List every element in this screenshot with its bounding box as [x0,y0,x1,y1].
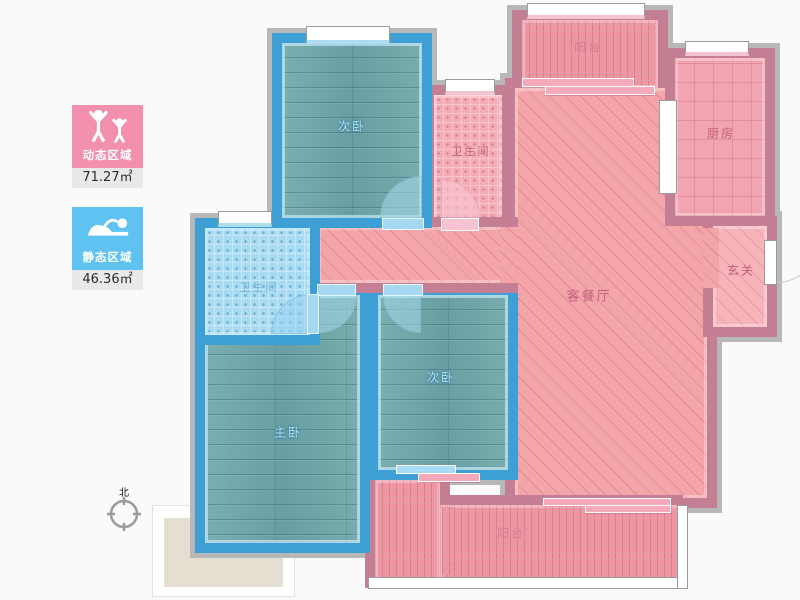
label-balcony-top: 阳台 [574,39,602,56]
sliding-door-balcony-top-panel2 [545,86,655,95]
label-foyer: 玄关 [727,262,755,279]
entry-door-leaf [764,240,777,285]
door-leaf-bedroom-top-left [382,218,424,230]
door-leaf-master-bedroom [317,284,356,296]
label-kitchen: 厨房 [707,125,735,142]
door-arc-entry [777,241,800,283]
label-bathroom-left: 卫生间 [240,279,279,295]
static-area-label: 静态区域 [83,249,133,265]
static-area-card: 静态区域 46.36㎡ [72,207,143,290]
sliding-door-bedroom-balcony-panel2 [418,473,480,482]
person-sleeping-icon [85,207,131,249]
label-bathroom-top: 卫生间 [452,143,491,159]
window-kitchen [685,41,749,56]
kitchen-door [659,100,677,194]
dynamic-area-box: 动态区域 [72,105,143,168]
label-master-bedroom: 主卧 [274,424,302,441]
door-leaf-bathroom-left [307,294,319,334]
balcony-bottom-railing [368,577,684,589]
opening-living-foyer [703,228,719,288]
opening-balcony-join [442,507,454,575]
opening-corridor-living [500,227,518,283]
window-bedroom-top-left [306,26,390,44]
static-area-box: 静态区域 [72,207,143,270]
balcony-right-railing [677,505,688,589]
window-bathroom-top [445,79,495,95]
people-dancing-icon [85,105,131,147]
dynamic-area-label: 动态区域 [83,147,133,163]
window-bathroom-left [218,211,272,227]
label-bedroom-center: 次卧 [427,369,455,386]
dynamic-area-value: 71.27㎡ [72,168,143,188]
static-area-value: 46.36㎡ [72,270,143,290]
window-balcony-top [527,3,645,19]
sliding-door-living-balcony-panel2 [585,505,671,513]
dynamic-area-card: 动态区域 71.27㎡ [72,105,143,188]
room-balcony-bottom-left [365,470,450,588]
door-leaf-bedroom-center [383,284,423,296]
label-living-dining: 客餐厅 [566,286,611,305]
label-balcony-bottom: 阳台 [497,525,525,542]
compass-icon [100,494,148,536]
label-bedroom-top-left: 次卧 [338,118,366,135]
door-leaf-bathroom-top [441,218,479,231]
